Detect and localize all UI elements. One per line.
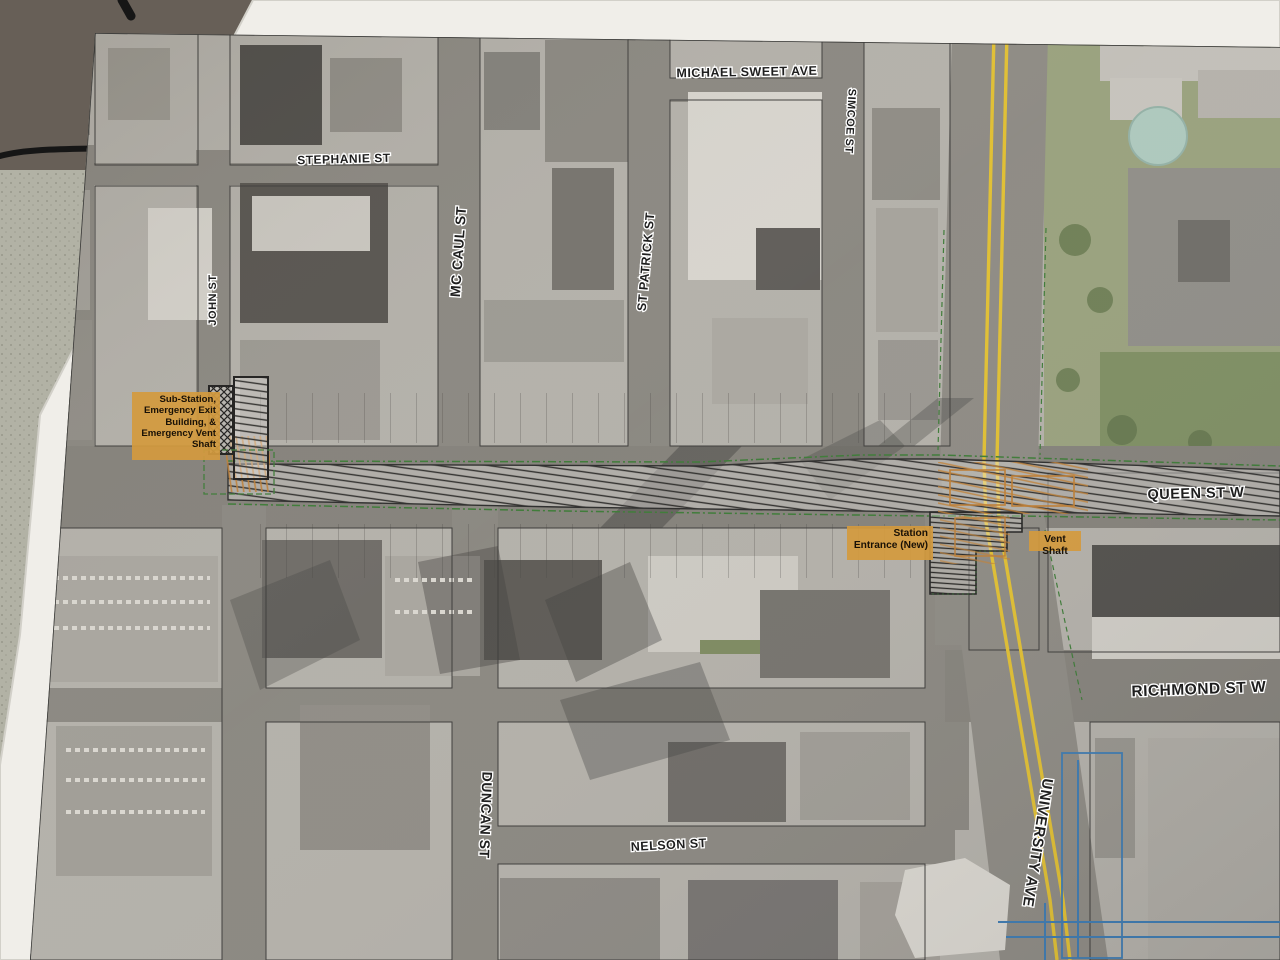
map-artwork: MICHAEL SWEET AVE STEPHANIE ST QUEEN ST … [20,25,1280,960]
photo-tint [20,25,1280,960]
street-label-john: JOHN ST [207,274,219,325]
photographed-map-scene: MICHAEL SWEET AVE STEPHANIE ST QUEEN ST … [0,0,1280,960]
annotation-vent-shaft-label: Vent Shaft [1029,531,1081,551]
annotation-station-entrance-label: Station Entrance (New) [847,526,933,560]
street-label-michael-sweet: MICHAEL SWEET AVE [676,64,817,80]
street-label-duncan: DUNCAN ST [476,771,495,858]
street-label-stephanie: STEPHANIE ST [297,151,391,167]
annotation-substation-label: Sub-Station, Emergency Exit Building, & … [132,392,220,460]
street-label-queen: QUEEN ST W [1147,485,1244,504]
